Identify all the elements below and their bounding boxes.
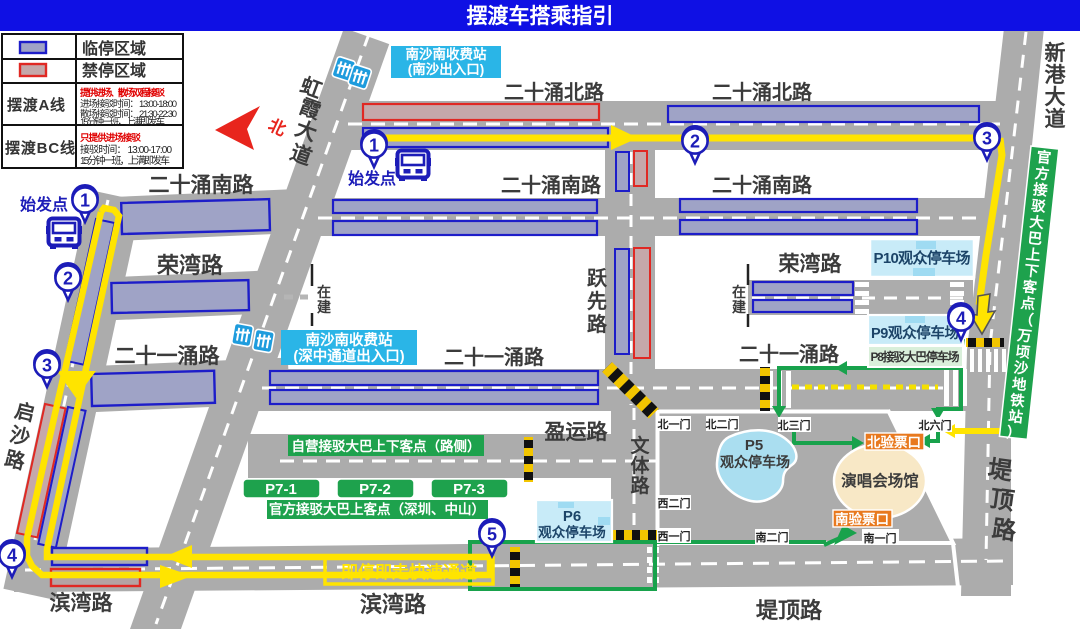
svg-text:P7-1: P7-1 <box>265 481 297 498</box>
svg-text:南沙南收费站: 南沙南收费站 <box>306 331 393 349</box>
svg-text:摆渡BC线: 摆渡BC线 <box>5 139 75 157</box>
svg-text:南验票口: 南验票口 <box>835 511 889 527</box>
svg-text:大: 大 <box>1029 213 1046 233</box>
svg-text:4: 4 <box>7 546 17 566</box>
svg-text:上: 上 <box>1025 246 1042 265</box>
svg-text:摆渡车搭乘指引: 摆渡车搭乘指引 <box>467 4 614 28</box>
svg-text:顷: 顷 <box>1015 343 1032 362</box>
svg-text:沙: 沙 <box>1013 359 1030 378</box>
svg-text:(深中通道出入口): (深中通道出入口) <box>293 347 404 365</box>
svg-text:）: ） <box>1006 423 1022 442</box>
svg-text:二十涌北路: 二十涌北路 <box>504 80 605 104</box>
svg-text:二十一涌路: 二十一涌路 <box>739 342 840 366</box>
svg-text:观众停车场: 观众停车场 <box>720 454 790 470</box>
svg-text:禁停区域: 禁停区域 <box>82 61 146 80</box>
svg-text:万: 万 <box>1015 327 1032 346</box>
svg-text:P7-2: P7-2 <box>359 481 391 498</box>
svg-text:观众停车场: 观众停车场 <box>538 524 606 540</box>
svg-text:建: 建 <box>317 299 331 315</box>
svg-text:荣湾路: 荣湾路 <box>156 253 224 278</box>
svg-text:大: 大 <box>1045 86 1066 109</box>
svg-text:3: 3 <box>982 129 992 149</box>
svg-text:P7-3: P7-3 <box>453 481 485 498</box>
svg-text:体: 体 <box>630 454 650 477</box>
svg-text:客: 客 <box>1021 277 1039 297</box>
svg-text:官方接驳大巴上客点（深圳、中山）: 官方接驳大巴上客点（深圳、中山） <box>269 501 485 517</box>
svg-text:即停即走快速通道: 即停即走快速通道 <box>341 562 477 582</box>
svg-text:驳: 驳 <box>1030 197 1047 216</box>
svg-text:下: 下 <box>1023 262 1039 280</box>
svg-text:北一门: 北一门 <box>658 417 691 431</box>
svg-text:地: 地 <box>1011 375 1028 395</box>
svg-text:P10观众停车场: P10观众停车场 <box>874 249 971 267</box>
svg-text:2: 2 <box>63 269 73 289</box>
svg-text:只提供进场接驳: 只提供进场接驳 <box>80 132 141 144</box>
svg-text:路: 路 <box>990 515 1019 546</box>
svg-text:巴: 巴 <box>1027 230 1044 249</box>
svg-text:堤顶路: 堤顶路 <box>756 598 823 623</box>
svg-text:提供进场、散场双程接驳: 提供进场、散场双程接驳 <box>80 87 165 99</box>
svg-text:盈运路: 盈运路 <box>544 420 609 444</box>
svg-text:路: 路 <box>587 312 608 336</box>
svg-text:15分钟一班，上满即发车: 15分钟一班，上满即发车 <box>80 116 165 128</box>
svg-text:临停区域: 临停区域 <box>82 39 146 58</box>
svg-text:二十涌南路: 二十涌南路 <box>501 173 602 197</box>
svg-text:二十涌北路: 二十涌北路 <box>712 80 813 104</box>
svg-text:滨湾路: 滨湾路 <box>50 591 114 615</box>
svg-text:西二门: 西二门 <box>658 496 691 510</box>
svg-text:自营接驳大巴上下客点（路侧）: 自营接驳大巴上下客点（路侧） <box>292 438 481 454</box>
svg-text:官: 官 <box>1036 148 1052 167</box>
svg-text:方: 方 <box>1034 164 1050 183</box>
svg-text:二十涌南路: 二十涌南路 <box>712 173 813 197</box>
svg-text:始发点: 始发点 <box>348 169 396 188</box>
svg-text:西一门: 西一门 <box>658 529 691 543</box>
svg-text:在: 在 <box>317 284 331 300</box>
svg-text:二十一涌路: 二十一涌路 <box>115 344 221 368</box>
svg-text:1: 1 <box>80 191 90 211</box>
svg-text:2: 2 <box>690 132 700 152</box>
svg-text:4: 4 <box>956 309 966 329</box>
svg-text:二十一涌路: 二十一涌路 <box>444 345 545 369</box>
svg-text:滨湾路: 滨湾路 <box>360 592 427 617</box>
svg-text:P6: P6 <box>563 508 581 525</box>
svg-text:接: 接 <box>1032 180 1049 200</box>
svg-text:先: 先 <box>587 289 607 313</box>
svg-text:北六门: 北六门 <box>919 418 952 432</box>
svg-text:铁: 铁 <box>1009 391 1026 411</box>
svg-text:(南沙出入口): (南沙出入口) <box>408 61 485 77</box>
svg-text:道: 道 <box>1045 107 1066 131</box>
svg-text:南二门: 南二门 <box>756 530 789 544</box>
svg-text:荣湾路: 荣湾路 <box>778 252 843 276</box>
svg-text:顶: 顶 <box>988 486 1016 516</box>
svg-text:北三门: 北三门 <box>778 418 811 432</box>
svg-text:堤: 堤 <box>986 456 1015 486</box>
svg-text:北二门: 北二门 <box>706 417 739 431</box>
svg-text:始发点: 始发点 <box>20 195 68 214</box>
svg-text:接驳时间： 13:00-17:00: 接驳时间： 13:00-17:00 <box>80 143 172 156</box>
svg-text:南一门: 南一门 <box>864 531 897 545</box>
svg-text:站: 站 <box>1007 407 1024 427</box>
svg-text:3: 3 <box>42 356 52 376</box>
svg-text:（: （ <box>1018 310 1035 330</box>
svg-text:跃: 跃 <box>587 266 608 290</box>
svg-text:二十涌南路: 二十涌南路 <box>149 173 255 197</box>
svg-text:北验票口: 北验票口 <box>867 434 921 450</box>
svg-text:在: 在 <box>732 284 746 300</box>
svg-text:摆渡A线: 摆渡A线 <box>7 96 65 114</box>
svg-text:路: 路 <box>630 474 650 497</box>
svg-text:P9观众停车场: P9观众停车场 <box>871 324 959 342</box>
svg-text:建: 建 <box>732 299 746 315</box>
svg-text:15分钟一班，上满即发车: 15分钟一班，上满即发车 <box>80 154 170 167</box>
svg-text:文: 文 <box>630 434 650 457</box>
svg-text:5: 5 <box>487 525 497 545</box>
svg-text:1: 1 <box>369 136 379 156</box>
svg-text:港: 港 <box>1045 63 1067 87</box>
svg-text:P8接驳大巴停车场: P8接驳大巴停车场 <box>871 349 960 364</box>
svg-text:演唱会场馆: 演唱会场馆 <box>841 471 919 490</box>
svg-text:P5: P5 <box>745 437 763 454</box>
svg-text:南沙南收费站: 南沙南收费站 <box>406 46 487 62</box>
svg-text:新: 新 <box>1045 41 1066 65</box>
svg-text:点: 点 <box>1020 295 1037 314</box>
